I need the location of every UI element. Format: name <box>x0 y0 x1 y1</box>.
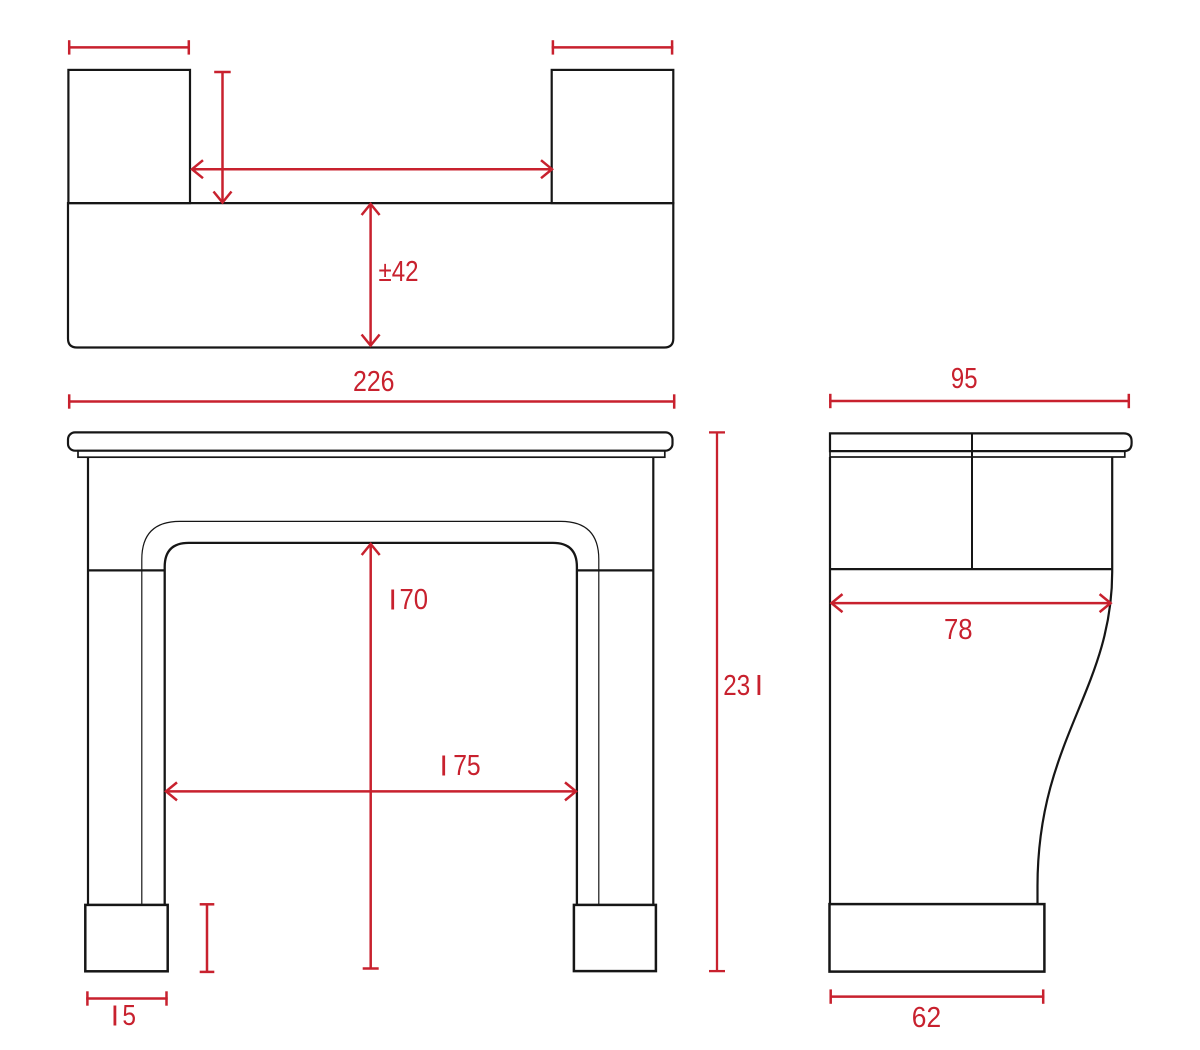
svg-text:75: 75 <box>453 750 481 782</box>
svg-text:78: 78 <box>944 614 973 646</box>
svg-text:70: 70 <box>400 584 429 616</box>
svg-text:5: 5 <box>122 1000 136 1032</box>
svg-text:±42: ±42 <box>379 256 419 288</box>
svg-text:226: 226 <box>353 366 395 398</box>
svg-text:95: 95 <box>951 363 978 395</box>
svg-text:23: 23 <box>723 670 750 702</box>
svg-text:62: 62 <box>912 1002 941 1034</box>
